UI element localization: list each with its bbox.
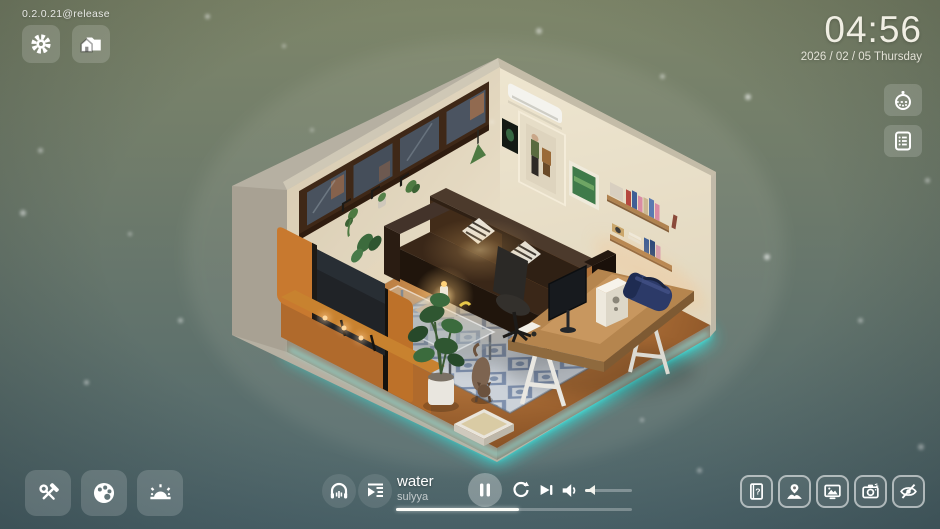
bottomleft-toolbar [25,470,183,516]
topleft-toolbar [22,25,110,63]
playlist-button[interactable] [358,474,392,508]
clock: 04:56 2026 / 02 / 05 Thursday [801,10,922,63]
progress-fill [396,508,519,511]
pause-icon [478,482,492,498]
settings-button[interactable] [22,25,60,63]
home-folder-icon [78,31,104,57]
svg-text:?: ? [755,487,760,497]
room-viewport[interactable] [0,0,940,529]
hide-ui-button[interactable] [892,475,925,508]
gallery-icon [823,482,842,501]
weather-button[interactable] [137,470,183,516]
weather-sun-icon [147,480,174,507]
build-tools-button[interactable] [25,470,71,516]
gacha-button[interactable] [884,84,922,116]
track-artist: sulyya [397,491,428,503]
visit-location-button[interactable] [778,475,811,508]
hide-ui-icon [899,482,918,501]
bottomright-toolbar: ? [740,475,925,508]
stage: 0.2.0.21@release 04:56 2026 / 02 / 05 Th… [0,0,940,529]
person-pin-icon [785,482,804,501]
skip-next-icon [537,481,555,499]
version-label: 0.2.0.21@release [22,8,110,20]
volume-button[interactable] [560,481,578,499]
skip-next-button[interactable] [535,479,557,501]
room-diorama[interactable] [0,0,940,529]
progress-bar[interactable] [396,508,632,511]
palette-icon [91,480,117,506]
camera-icon [861,482,880,501]
palette-button[interactable] [81,470,127,516]
gallery-button[interactable] [816,475,849,508]
pause-button[interactable] [468,473,502,507]
gear-icon [29,32,53,56]
gacha-ball-icon [892,89,914,111]
right-toolbar [884,84,922,157]
playlist-icon [364,480,386,502]
clock-time: 04:56 [801,10,922,50]
repeat-button[interactable] [509,478,533,502]
repeat-icon [511,480,531,500]
checklist-icon [892,130,914,152]
clock-date: 2026 / 02 / 05 Thursday [801,51,922,63]
speaker-icon [561,482,578,499]
home-rooms-button[interactable] [72,25,110,63]
help-button[interactable]: ? [740,475,773,508]
headphones-icon [328,480,350,502]
screenshot-button[interactable] [854,475,887,508]
volume-slider[interactable] [585,489,632,492]
help-book-icon: ? [747,482,766,501]
checklist-button[interactable] [884,125,922,157]
ambience-button[interactable] [322,474,356,508]
track-title: water [397,473,434,490]
volume-handle[interactable] [588,485,595,495]
tools-icon [35,480,62,507]
